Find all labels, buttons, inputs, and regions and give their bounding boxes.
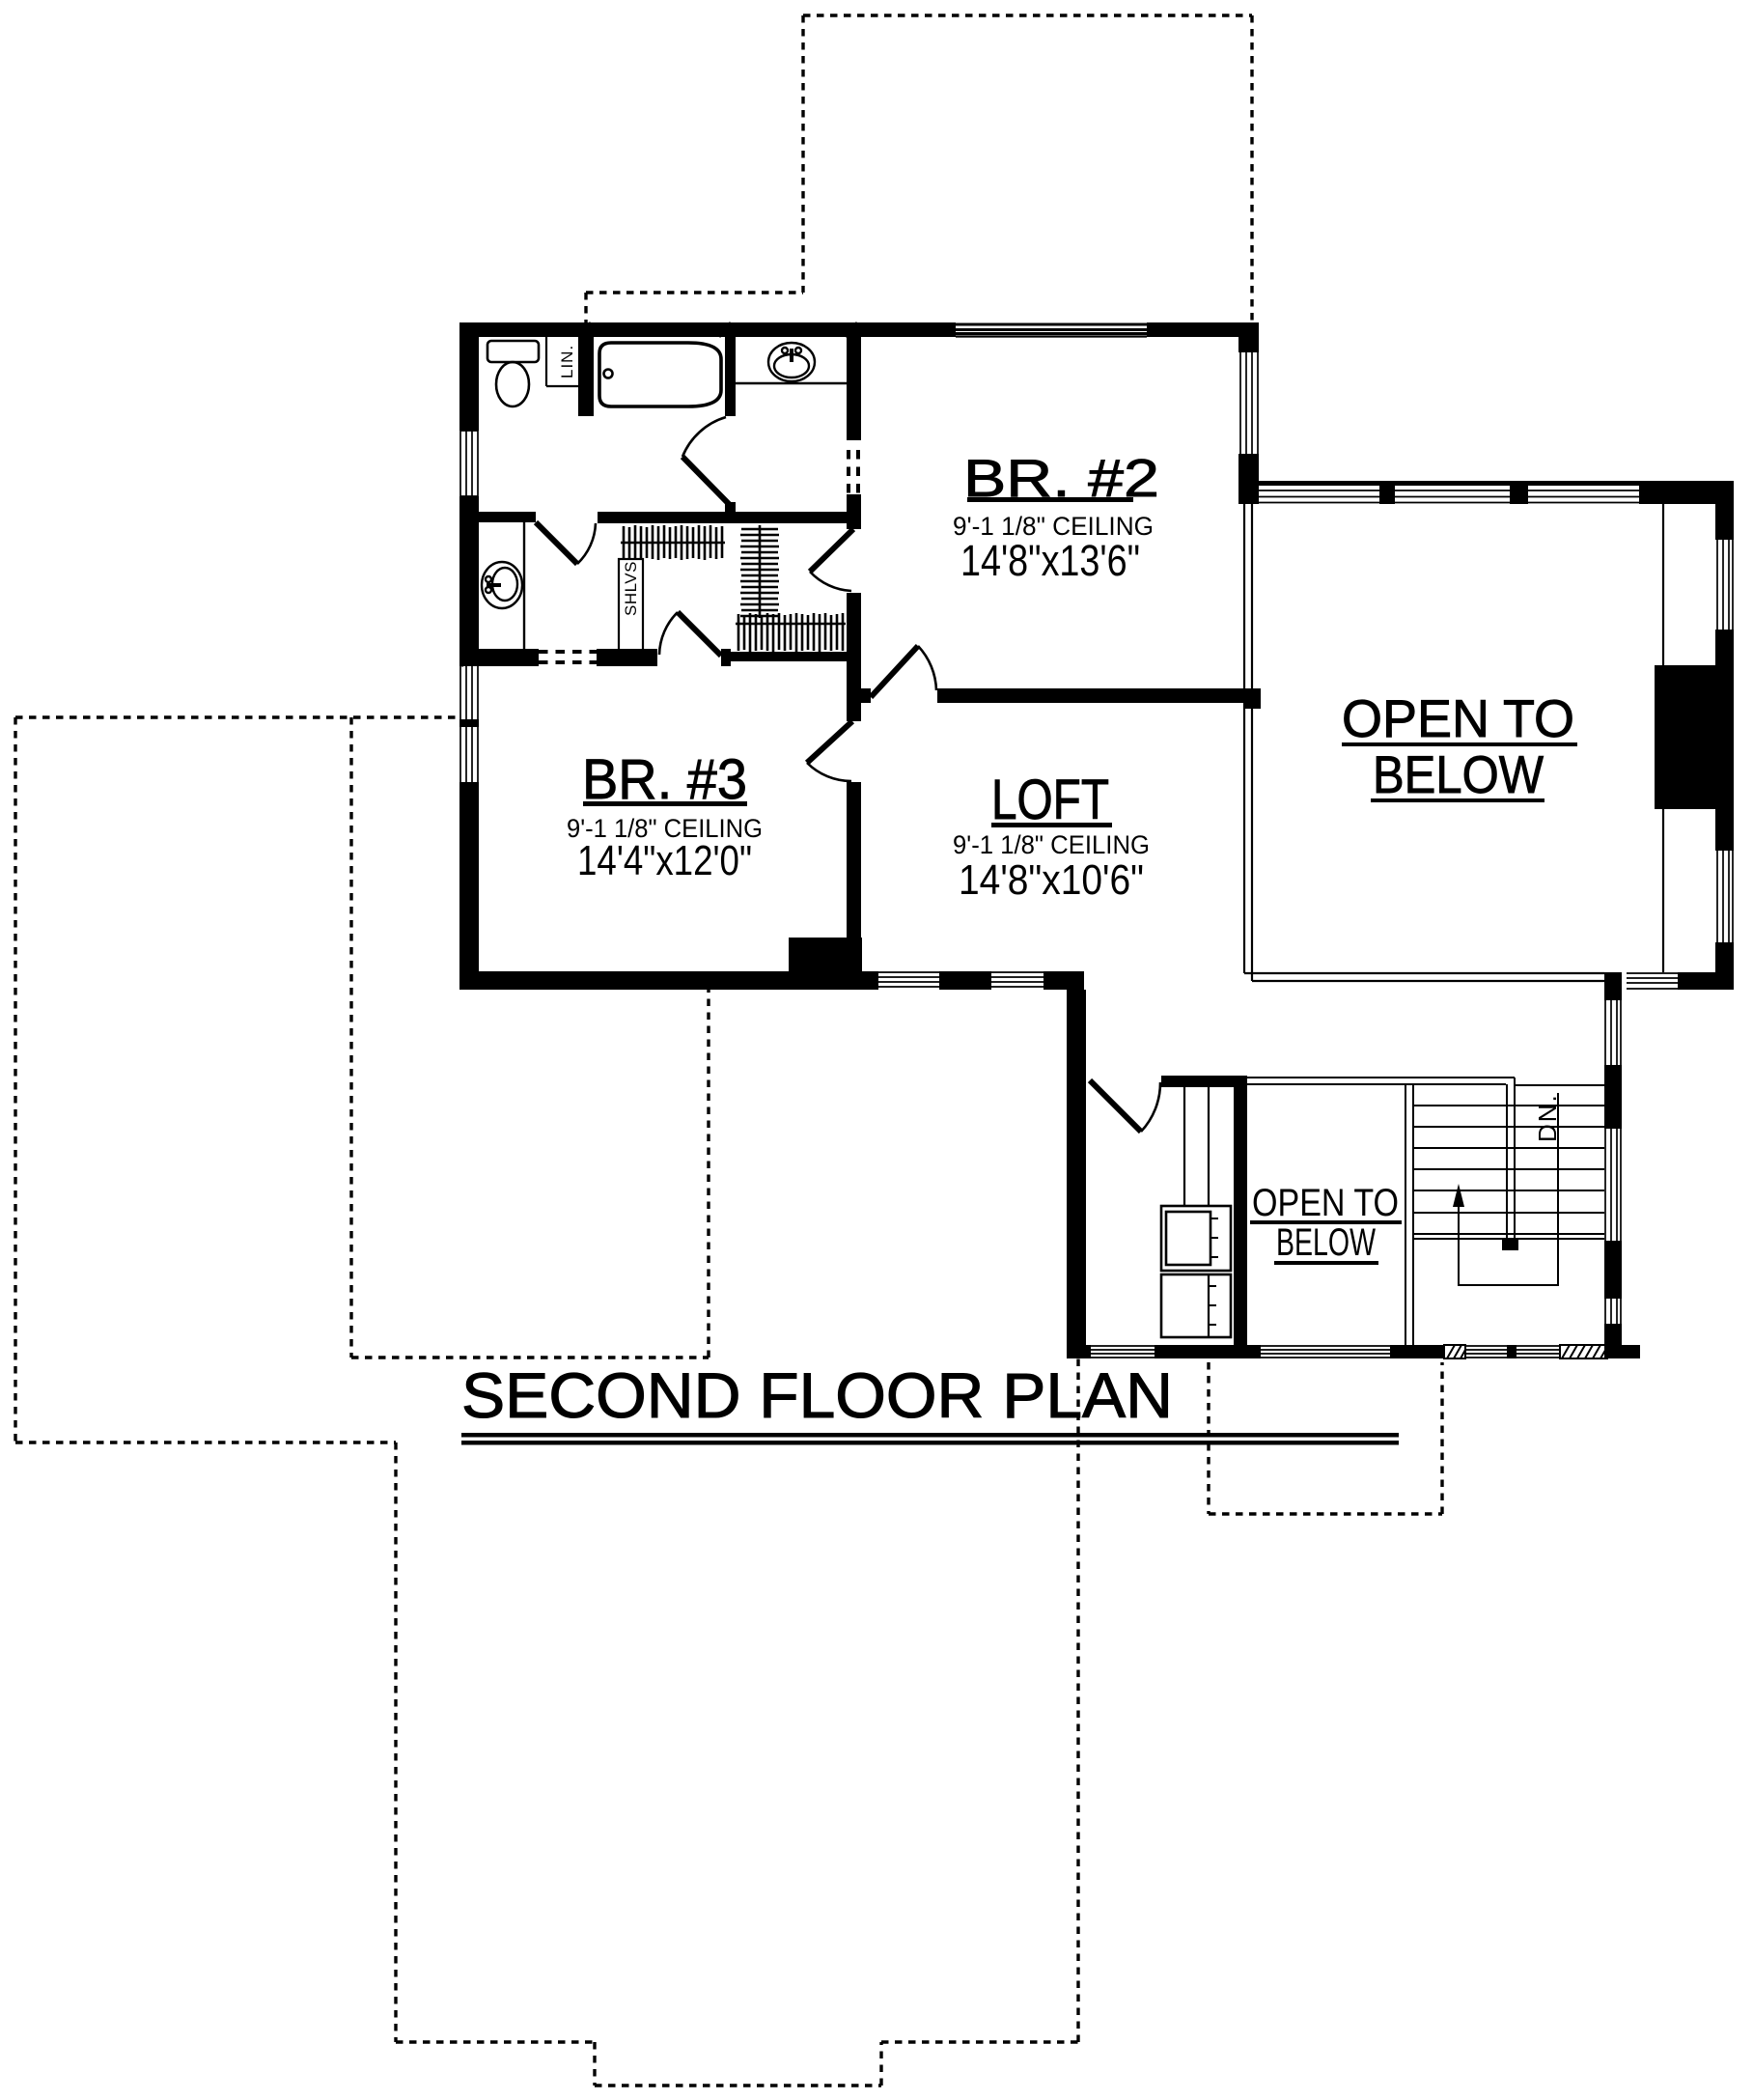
svg-text:BELOW: BELOW [1276, 1221, 1376, 1264]
svg-text:LIN.: LIN. [558, 345, 576, 378]
svg-text:SHLVS.: SHLVS. [622, 556, 640, 616]
svg-text:OPEN TO: OPEN TO [1342, 688, 1574, 748]
svg-text:DN.: DN. [1533, 1093, 1562, 1142]
svg-text:SECOND FLOOR PLAN: SECOND FLOOR PLAN [461, 1359, 1173, 1431]
svg-text:14'8"x10'6": 14'8"x10'6" [959, 856, 1144, 904]
svg-text:BELOW: BELOW [1373, 744, 1544, 804]
svg-text:14'4"x12'0": 14'4"x12'0" [577, 837, 752, 884]
svg-text:OPEN TO: OPEN TO [1252, 1182, 1399, 1224]
svg-text:LOFT: LOFT [991, 769, 1109, 831]
svg-text:9'-1 1/8" CEILING: 9'-1 1/8" CEILING [953, 830, 1150, 859]
svg-text:14'8"x13'6": 14'8"x13'6" [960, 536, 1140, 585]
